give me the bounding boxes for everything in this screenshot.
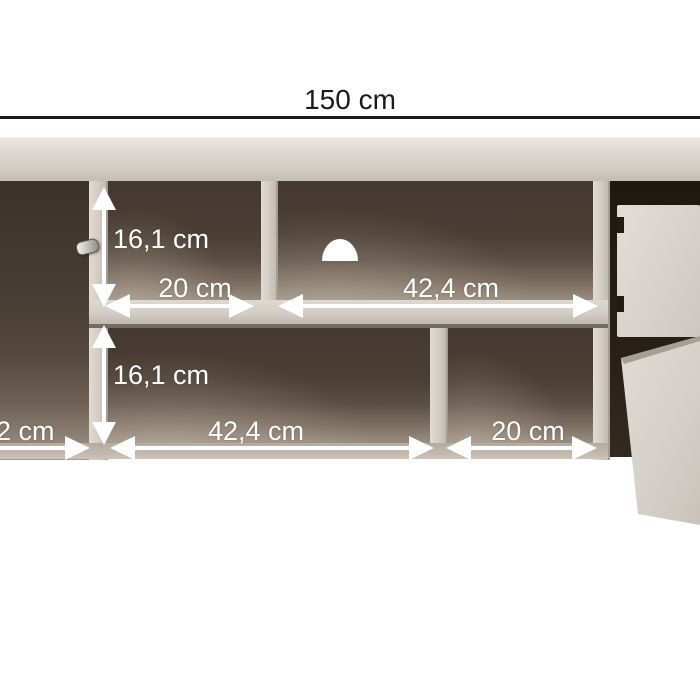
overall-width-label: 150 cm <box>0 84 700 116</box>
dimension-line-horizontal <box>133 446 412 450</box>
dimension-line-horizontal <box>0 446 68 450</box>
arrowhead-right <box>572 436 597 460</box>
arrowhead-left <box>105 294 130 318</box>
bottom-row-divider <box>430 324 448 444</box>
bottom-left-compartment-width-label: 42,4 cm <box>200 416 312 447</box>
dimension-line-horizontal <box>469 446 575 450</box>
arrowhead-right <box>229 294 254 318</box>
arrowhead-left <box>278 294 303 318</box>
furniture-dimension-diagram: 150 cm 16,1 cm 20 cm 42,4 cm 16,1 cm 2 c… <box>0 0 700 700</box>
overall-width-dimension-line <box>0 116 700 119</box>
bottom-right-compartment-width-label: 20 cm <box>481 416 575 447</box>
top-right-compartment-width-label: 42,4 cm <box>395 273 507 304</box>
dimension-line-horizontal <box>301 304 575 308</box>
dimension-line-vertical <box>102 208 106 287</box>
top-left-compartment-width-label: 20 cm <box>148 273 242 304</box>
drawer-handle-notch-bottom <box>617 296 624 312</box>
dimension-line-vertical <box>102 346 106 425</box>
drawer-handle-notch-top <box>617 217 624 233</box>
arrowhead-up <box>92 325 116 348</box>
furniture-top-panel <box>0 137 700 183</box>
arrowhead-left <box>110 436 135 460</box>
arrowhead-up <box>92 187 116 210</box>
arrowhead-left <box>446 436 471 460</box>
top-row-divider <box>261 181 278 302</box>
closed-drawer-front <box>617 205 700 337</box>
bottom-shelf-height-label: 16,1 cm <box>113 360 209 391</box>
arrowhead-right <box>409 436 434 460</box>
top-shelf-height-label: 16,1 cm <box>113 224 209 255</box>
arrowhead-right <box>65 436 90 460</box>
bottom-left-edge-partial-label: 2 cm <box>0 416 55 447</box>
dimension-line-horizontal <box>128 304 232 308</box>
arrowhead-right <box>573 294 598 318</box>
